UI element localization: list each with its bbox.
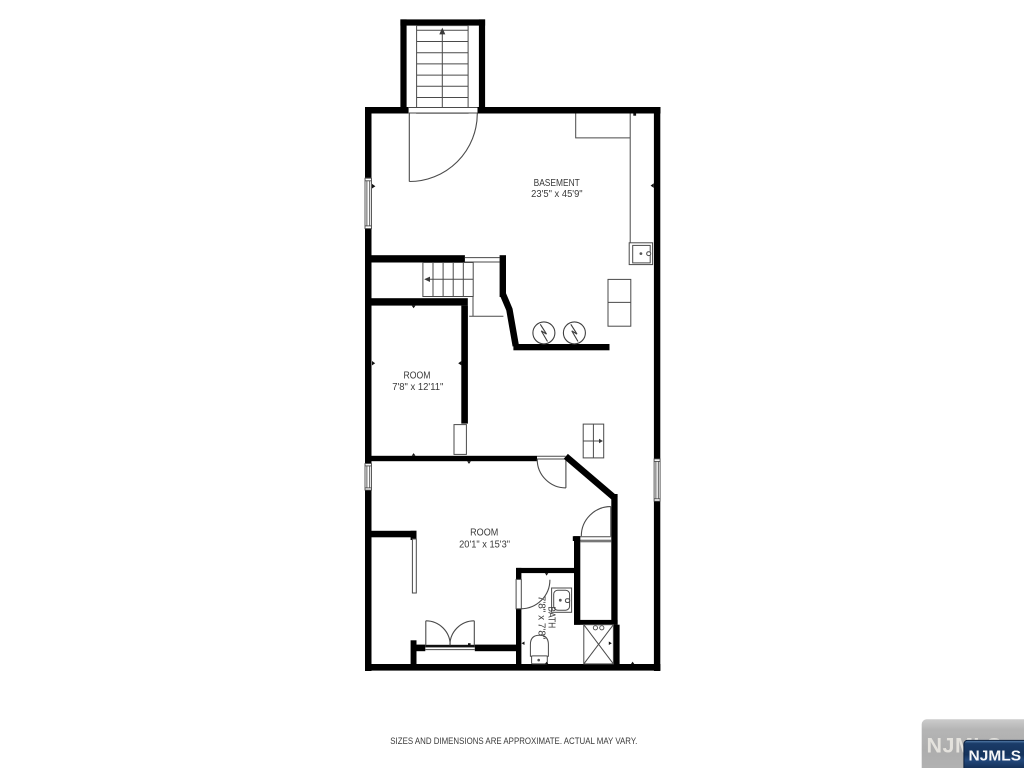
svg-text:7'8" x 12'11": 7'8" x 12'11" <box>392 382 444 393</box>
svg-text:ROOM: ROOM <box>470 528 498 539</box>
svg-text:SIZES AND DIMENSIONS ARE APPRO: SIZES AND DIMENSIONS ARE APPROXIMATE. AC… <box>390 736 637 746</box>
svg-text:23'5" x 45'9": 23'5" x 45'9" <box>531 189 583 200</box>
svg-text:7'8" x 7'8": 7'8" x 7'8" <box>536 596 547 640</box>
svg-text:NJMLS: NJMLS <box>969 748 1022 764</box>
svg-text:BASEMENT: BASEMENT <box>534 178 580 189</box>
svg-text:ROOM: ROOM <box>404 371 431 382</box>
svg-text:20'1" x 15'3": 20'1" x 15'3" <box>459 540 510 551</box>
